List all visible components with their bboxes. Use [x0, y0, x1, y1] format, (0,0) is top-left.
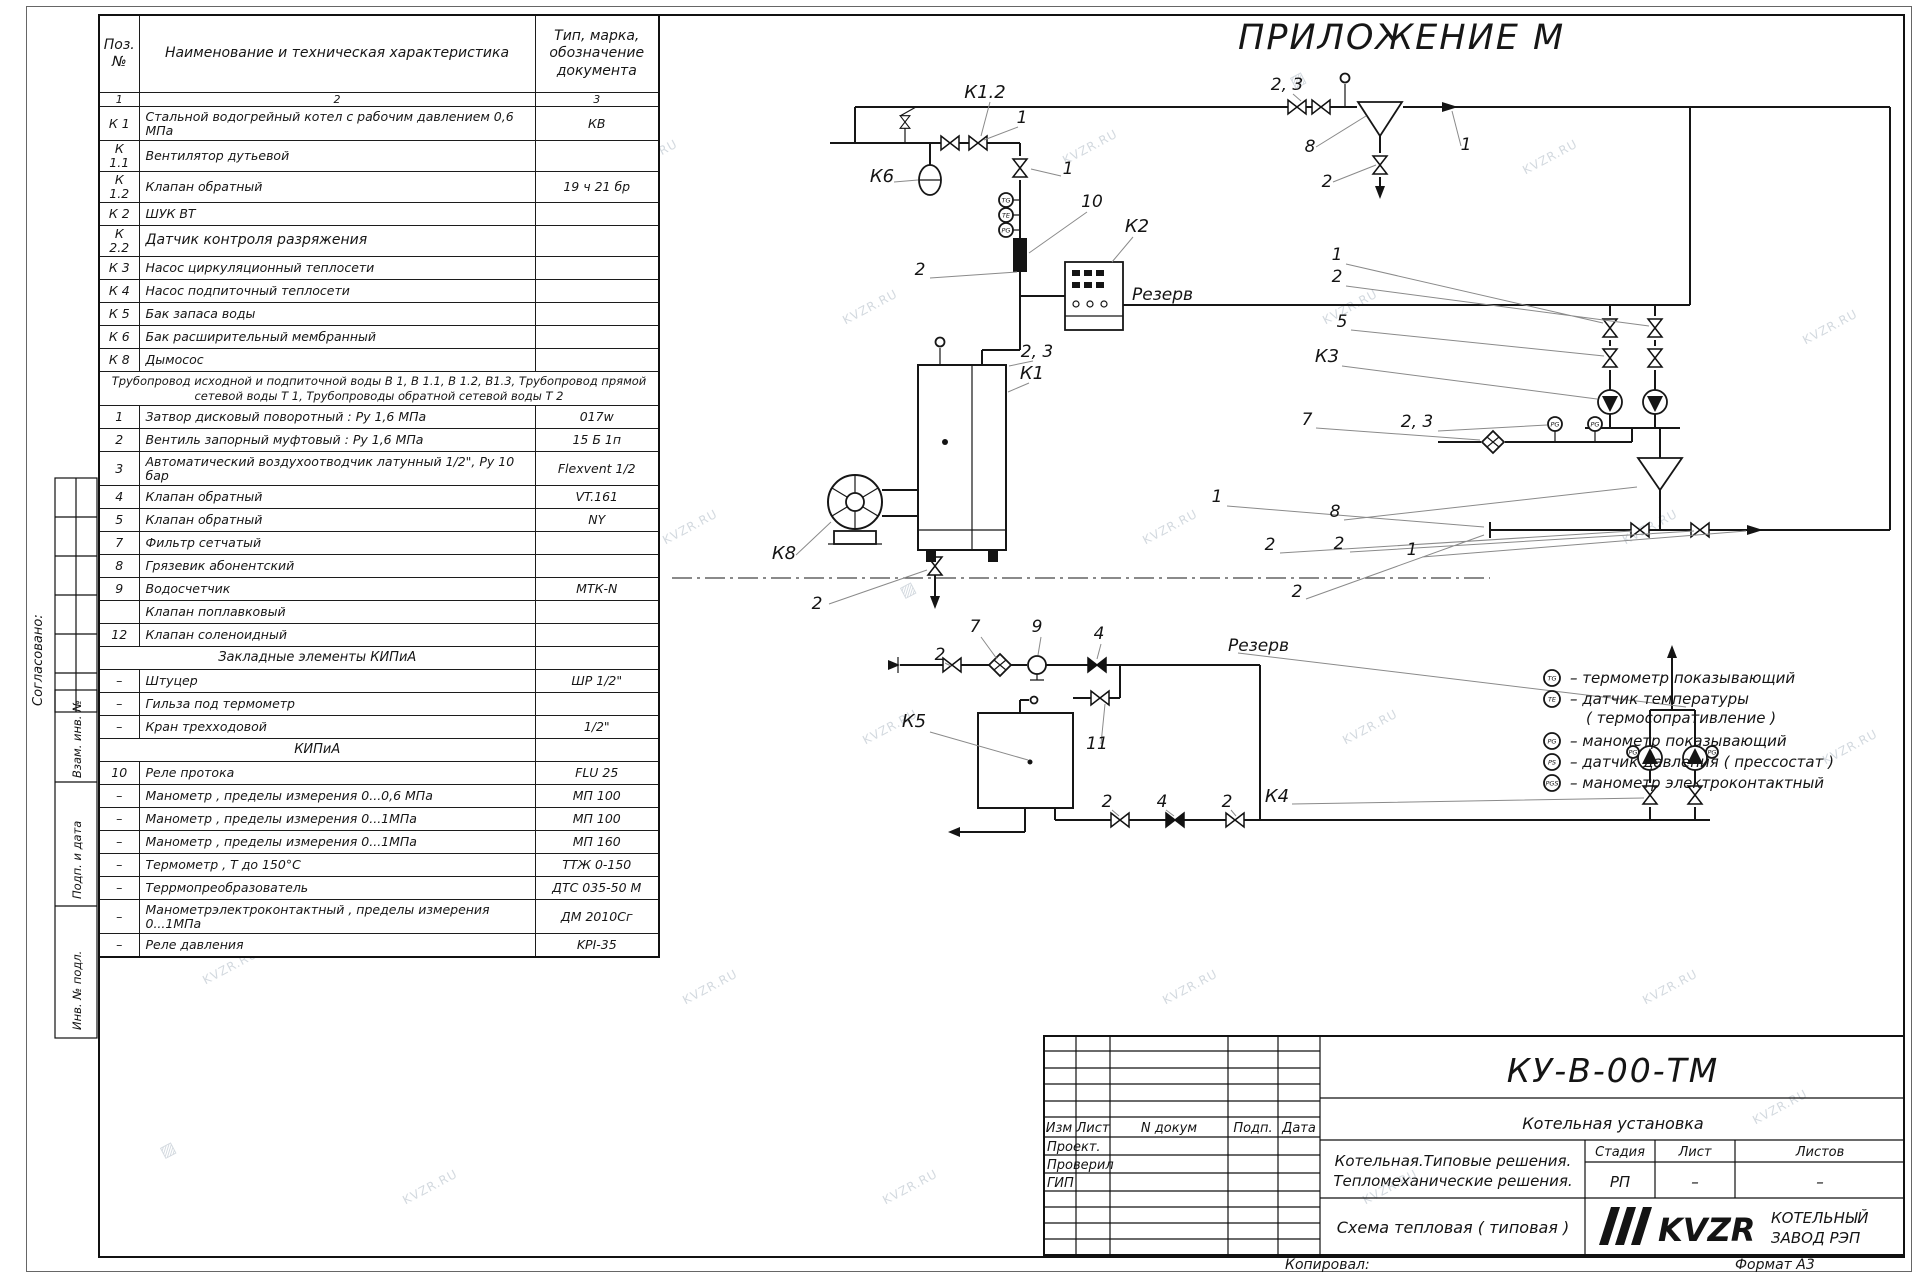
part-pos: К 8 [99, 349, 139, 372]
table-row: К 1.1Вентилятор дутьевой [99, 141, 659, 172]
part-pos: К 1 [99, 107, 139, 141]
table-row: 7Фильтр сетчатый [99, 532, 659, 555]
part-name: Реле давления [139, 934, 535, 958]
safety-valve-icon [900, 116, 910, 129]
callout-label: 2 [1334, 534, 1345, 554]
callout-label: 2 [1265, 535, 1276, 555]
callout-label: 1 [1332, 245, 1343, 265]
part-pos: К 5 [99, 303, 139, 326]
section-title: КИПиА [99, 739, 535, 762]
storage-tank-k5 [978, 713, 1073, 808]
company-line2: ЗАВОД РЭП [1771, 1229, 1860, 1247]
part-name: Манометр , пределы измерения 0...0,6 МПа [139, 785, 535, 808]
table-row: –ТеррмопреобразовательДТС 035-50 М [99, 877, 659, 900]
legend-text: – манометр показывающий [1570, 732, 1787, 750]
callout-label: Резерв [1132, 285, 1193, 305]
col-header-pos: Поз. № [99, 15, 139, 93]
callout-label: К3 [1315, 346, 1339, 367]
callout-label: 10 [1081, 192, 1103, 212]
part-name: Манометрэлектроконтактный , пределы изме… [139, 900, 535, 934]
callout-label: 2 [915, 260, 926, 280]
mud-separator-icon [1638, 458, 1682, 490]
legend-symbol: PS [1548, 759, 1556, 767]
callout-label: К4 [1265, 786, 1289, 807]
legend-text: – термометр показывающий [1570, 669, 1795, 687]
table-row: 1Затвор дисковый поворотный : Ру 1,6 МПа… [99, 406, 659, 429]
instrument-legend: TG – термометр показывающий TE – датчик … [1544, 669, 1834, 792]
callout-label: 2 [935, 645, 946, 665]
table-row: 4Клапан обратныйVT.161 [99, 486, 659, 509]
callout-label: К8 [772, 543, 796, 564]
part-name: Манометр , пределы измерения 0...1МПа [139, 831, 535, 854]
callout-label: 7 [1302, 410, 1313, 430]
water-meter-icon [1028, 656, 1046, 680]
boiler-k1 [918, 365, 1006, 562]
part-pos: 3 [99, 452, 139, 486]
callout-label: 2, 3 [1271, 75, 1303, 95]
part-name: Клапан обратный [139, 486, 535, 509]
callout-label: 2, 3 [1401, 412, 1433, 432]
part-pos: К 2 [99, 203, 139, 226]
part-name: Стальной водогрейный котел с рабочим дав… [139, 107, 535, 141]
part-name: Штуцер [139, 670, 535, 693]
stage-header: Стадия [1595, 1145, 1645, 1160]
part-pos: – [99, 934, 139, 958]
drawing-sheet: { "sheet": { "appendix": "ПРИЛОЖЕНИЕ М",… [0, 0, 1920, 1280]
part-pos: К 4 [99, 280, 139, 303]
boiler-schematic: TG TE PG PG PG PG PG К1.2 1 2, 3 8 1 2 К… [600, 10, 1920, 1040]
callout-label: 7 [970, 617, 981, 637]
part-pos: 1 [99, 406, 139, 429]
part-pos: – [99, 854, 139, 877]
callout-label: 1 [1461, 135, 1472, 155]
table-row: –Кран трехходовой1/2" [99, 716, 659, 739]
part-name: Клапан соленоидный [139, 624, 535, 647]
part-pos: – [99, 808, 139, 831]
kvzr-logo-icon [1599, 1207, 1652, 1245]
list-header: Лист [1076, 1121, 1110, 1136]
table-row: 3Автоматический воздухоотводчик латунный… [99, 452, 659, 486]
callout-labels: К1.2 1 2, 3 8 1 2 К6 1 10 К2 Резерв 2 1 … [772, 75, 1472, 812]
callout-label: 2 [1102, 792, 1113, 812]
callout-label: К6 [870, 166, 894, 187]
part-name: Насос подпиточный теплосети [139, 280, 535, 303]
table-row: 12Клапан соленоидный [99, 624, 659, 647]
section-title: Закладные элементы КИПиА [99, 647, 535, 670]
control-cabinet-k2 [1065, 262, 1123, 330]
left-margin-strip: Согласовано: Взам. инв. № Подп. и дата И… [26, 6, 98, 1272]
part-pos: 5 [99, 509, 139, 532]
legend-text: – датчик давления ( прессостат ) [1570, 753, 1834, 771]
part-name: Датчик контроля разряжения [139, 226, 535, 257]
part-pos: 12 [99, 624, 139, 647]
part-pos: – [99, 670, 139, 693]
part-pos: 7 [99, 532, 139, 555]
legend-symbol: TG [1547, 675, 1556, 683]
stage-value: РП [1610, 1173, 1630, 1191]
expansion-tank-k6 [919, 165, 941, 195]
callout-label: 5 [1337, 312, 1348, 332]
table-row: Клапан поплавковый [99, 601, 659, 624]
part-pos: – [99, 785, 139, 808]
title-block: Изм Лист N докум Подп. Дата Проект. Пров… [1043, 1035, 1905, 1256]
inv-podl-label: Инв. № подл. [70, 951, 84, 1030]
table-row: 10Реле протокаFLU 25 [99, 762, 659, 785]
legend-text: – датчик температуры [1570, 690, 1749, 708]
part-name: Фильтр сетчатый [139, 532, 535, 555]
sheet-value: – [1691, 1173, 1699, 1191]
doc-number: КУ-В-00-ТМ [1507, 1051, 1720, 1090]
part-name: Террмопреобразователь [139, 877, 535, 900]
callout-label: 1 [1063, 159, 1074, 179]
legend-symbol: PGS [1545, 780, 1558, 788]
callout-label: 1 [1017, 108, 1028, 128]
part-name: Насос циркуляционный теплосети [139, 257, 535, 280]
table-row: 2Вентиль запорный муфтовый : Ру 1,6 МПа1… [99, 429, 659, 452]
callout-label: 8 [1305, 137, 1316, 157]
part-pos: К 1.2 [99, 172, 139, 203]
part-pos: 4 [99, 486, 139, 509]
callout-label: 2 [1292, 582, 1303, 602]
part-name: ШУК ВТ [139, 203, 535, 226]
part-pos: – [99, 716, 139, 739]
callout-label: К2 [1125, 216, 1149, 237]
part-name: Затвор дисковый поворотный : Ру 1,6 МПа [139, 406, 535, 429]
section-row: КИПиА [99, 739, 659, 762]
callout-label: К1 [1020, 363, 1044, 384]
part-name: Автоматический воздухоотводчик латунный … [139, 452, 535, 486]
part-pos: 10 [99, 762, 139, 785]
agreed-label: Согласовано: [31, 614, 46, 706]
gauge-label: PG [1551, 421, 1560, 429]
legend-symbol: PG [1548, 738, 1557, 746]
table-row: К 4Насос подпиточный теплосети [99, 280, 659, 303]
callout-label: 1 [1407, 540, 1418, 560]
part-name: Бак расширительный мембранный [139, 326, 535, 349]
company-line1: КОТЕЛЬНЫЙ [1771, 1208, 1868, 1227]
callout-label: 9 [1032, 617, 1043, 637]
sheet-header: Лист [1678, 1145, 1712, 1160]
unit-name: Котельная установка [1522, 1114, 1703, 1133]
parts-table: Поз. № Наименование и техническая характ… [98, 14, 660, 958]
table-row: –Манометр , пределы измерения 0...0,6 МП… [99, 785, 659, 808]
legend-text: ( термосопративление ) [1586, 709, 1776, 727]
legend-text: – манометр электроконтактный [1570, 774, 1824, 792]
callout-label: 2 [1322, 172, 1333, 192]
table-row: 5Клапан обратныйNY [99, 509, 659, 532]
pump-k3-icon [1598, 390, 1667, 414]
part-pos: К 6 [99, 326, 139, 349]
part-name: Дымосос [139, 349, 535, 372]
part-name: Гильза под термометр [139, 693, 535, 716]
part-pos: – [99, 900, 139, 934]
drawing-name: Схема тепловая ( типовая ) [1337, 1218, 1570, 1237]
pipes-note: Трубопровод исходной и подпиточной воды … [99, 372, 659, 406]
podp-header: Подп. [1233, 1121, 1272, 1136]
part-name: Водосчетчик [139, 578, 535, 601]
table-row: К 2.2Датчик контроля разряжения [99, 226, 659, 257]
ndoc-header: N докум [1141, 1121, 1197, 1136]
col-number: 1 [99, 93, 139, 107]
pipes-note-row: Трубопровод исходной и подпиточной воды … [99, 372, 659, 406]
part-pos: 8 [99, 555, 139, 578]
callout-label: 11 [1086, 734, 1108, 754]
callout-label: Резерв [1228, 636, 1289, 656]
table-row: 8Грязевик абонентский [99, 555, 659, 578]
logo-text: KVZR [1658, 1211, 1755, 1249]
part-pos: – [99, 831, 139, 854]
part-name: Грязевик абонентский [139, 555, 535, 578]
izm-header: Изм [1046, 1121, 1073, 1136]
part-name: Вентилятор дутьевой [139, 141, 535, 172]
part-name: Кран трехходовой [139, 716, 535, 739]
parts-table-header: Поз. № Наименование и техническая характ… [99, 15, 659, 93]
callout-label: 2, 3 [1021, 342, 1053, 362]
table-row: К 6Бак расширительный мембранный [99, 326, 659, 349]
section-row: Закладные элементы КИПиА [99, 647, 659, 670]
part-name: Бак запаса воды [139, 303, 535, 326]
part-pos: К 1.1 [99, 141, 139, 172]
row-gip: ГИП [1047, 1176, 1074, 1191]
sheets-value: – [1816, 1173, 1824, 1191]
format-label: Формат А3 [1735, 1257, 1815, 1273]
part-pos: 2 [99, 429, 139, 452]
callout-label: 4 [1157, 792, 1168, 812]
callout-label: 2 [812, 594, 823, 614]
part-pos: К 2.2 [99, 226, 139, 257]
table-row: –Манометр , пределы измерения 0...1МПаМП… [99, 831, 659, 854]
part-name: Манометр , пределы измерения 0...1МПа [139, 808, 535, 831]
smoke-exhauster-k8 [828, 475, 882, 544]
project-name-line2: Тепломеханические решения. [1333, 1172, 1572, 1190]
copied-label: Копировал: [1285, 1257, 1370, 1273]
table-row: К 1.2Клапан обратный19 ч 21 бр [99, 172, 659, 203]
gauge-label: TG [1001, 197, 1010, 205]
table-row: –Реле давленияKPI-35 [99, 934, 659, 958]
part-pos [99, 601, 139, 624]
part-pos: – [99, 877, 139, 900]
table-row: –ШтуцерШР 1/2" [99, 670, 659, 693]
part-pos: 9 [99, 578, 139, 601]
part-name: Клапан обратный [139, 509, 535, 532]
sheets-header: Листов [1795, 1145, 1845, 1160]
table-row: –Гильза под термометр [99, 693, 659, 716]
part-name: Термометр , Т до 150°С [139, 854, 535, 877]
vzam-inv-label: Взам. инв. № [70, 700, 84, 778]
row-proekt: Проект. [1047, 1140, 1101, 1155]
table-row: –Манометрэлектроконтактный , пределы изм… [99, 900, 659, 934]
callout-label: 2 [1222, 792, 1233, 812]
callout-label: 4 [1094, 624, 1105, 644]
flow-relay-10 [1013, 238, 1027, 272]
table-row: К 1Стальной водогрейный котел с рабочим … [99, 107, 659, 141]
table-row: К 8Дымосос [99, 349, 659, 372]
callout-label: 1 [1212, 487, 1223, 507]
callout-label: К1.2 [964, 82, 1005, 103]
table-row: К 5Бак запаса воды [99, 303, 659, 326]
gauge-label: PG [1002, 227, 1011, 235]
mud-separator-icon [1358, 102, 1402, 136]
table-row: К 2ШУК ВТ [99, 203, 659, 226]
podp-data-label: Подп. и дата [70, 821, 84, 899]
table-row: К 3Насос циркуляционный теплосети [99, 257, 659, 280]
table-row: –Манометр , пределы измерения 0...1МПаМП… [99, 808, 659, 831]
table-row: –Термометр , Т до 150°СТТЖ 0-150 [99, 854, 659, 877]
gauge-label: TE [1002, 212, 1011, 220]
callout-label: 2 [1332, 267, 1343, 287]
part-name: Клапан обратный [139, 172, 535, 203]
part-pos: – [99, 693, 139, 716]
part-pos: К 3 [99, 257, 139, 280]
col-header-name: Наименование и техническая характеристик… [139, 15, 535, 93]
part-name: Вентиль запорный муфтовый : Ру 1,6 МПа [139, 429, 535, 452]
part-name: Реле протока [139, 762, 535, 785]
part-name: Клапан поплавковый [139, 601, 535, 624]
project-name-line1: Котельная.Типовые решения. [1335, 1152, 1572, 1170]
row-proveril: Проверил [1047, 1158, 1114, 1173]
date-header: Дата [1281, 1121, 1316, 1136]
callout-label: 8 [1330, 502, 1341, 522]
gauge-label: PG [1591, 421, 1600, 429]
col-number: 2 [139, 93, 535, 107]
table-row: 9ВодосчетчикМТК-N [99, 578, 659, 601]
column-numbers-row: 1 2 3 [99, 93, 659, 107]
legend-symbol: TE [1548, 696, 1557, 704]
callout-label: К5 [902, 711, 926, 732]
